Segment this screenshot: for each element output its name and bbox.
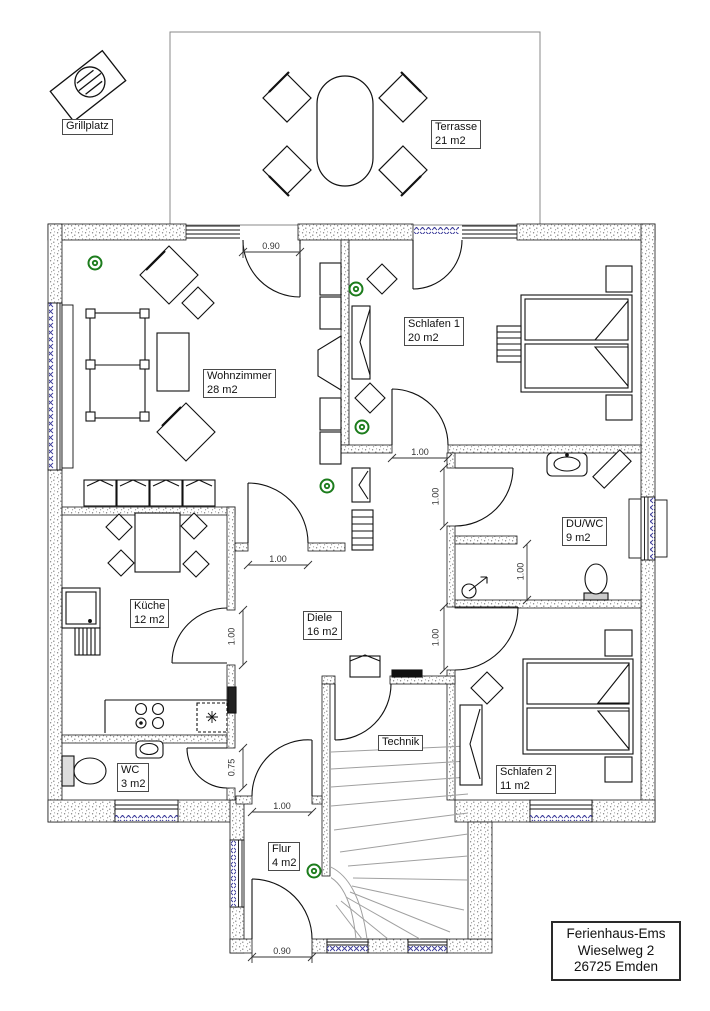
smoke-detector-icon: [308, 865, 321, 878]
room-area: 20 m2: [408, 332, 460, 346]
title-line-3: 26725 Emden: [555, 959, 677, 976]
room-name: Grillplatz: [66, 120, 109, 134]
room-name: Diele: [307, 612, 338, 626]
dim-terrace-door: 0.90: [253, 241, 289, 252]
room-label-schlafen2: Schlafen 2 11 m2: [496, 765, 556, 794]
room-label-grillplatz: Grillplatz: [62, 119, 113, 135]
room-label-terrasse: Terrasse 21 m2: [431, 120, 481, 149]
room-name: Wohnzimmer: [207, 370, 272, 384]
dim-wohnzimmer-door: 1.00: [260, 554, 296, 565]
smoke-detector-icon: [356, 421, 369, 434]
room-name: Terrasse: [435, 121, 477, 135]
dim-shower: 1.00: [516, 554, 527, 590]
room-name: WC: [121, 764, 145, 778]
shower-icon: [462, 577, 487, 598]
stove-icon: [136, 704, 164, 729]
room-label-wohnzimmer: Wohnzimmer 28 m2: [203, 369, 276, 398]
floorplan-drawing: [0, 0, 710, 1011]
smoke-detector-icon: [321, 480, 334, 493]
room-label-schlafen1: Schlafen 1 20 m2: [404, 317, 464, 346]
room-area: 28 m2: [207, 384, 272, 398]
smoke-detector-icon: [350, 283, 363, 296]
room-label-diele: Diele 16 m2: [303, 611, 342, 640]
room-name: Schlafen 1: [408, 318, 460, 332]
dim-kueche-door: 1.00: [227, 619, 238, 655]
room-label-wc: WC 3 m2: [117, 763, 149, 792]
room-label-kueche: Küche 12 m2: [130, 599, 169, 628]
room-area: 4 m2: [272, 857, 296, 871]
room-area: 12 m2: [134, 614, 165, 628]
room-label-technik: Technik: [378, 735, 423, 751]
dim-duwc-door: 1.00: [431, 479, 442, 515]
room-label-flur: Flur 4 m2: [268, 842, 300, 871]
dim-schlafen1-door: 1.00: [402, 447, 438, 458]
dim-flur-door: 1.00: [264, 801, 300, 812]
room-name: Küche: [134, 600, 165, 614]
room-area: 21 m2: [435, 135, 477, 149]
dim-wc-door: 0.75: [227, 750, 238, 786]
furniture-diele: [350, 468, 422, 677]
furniture-schlafen2: [460, 630, 633, 785]
floorplan: Grillplatz Terrasse 21 m2 Wohnzimmer 28 …: [0, 0, 710, 1011]
toilet-icon: [62, 756, 74, 786]
room-name: Schlafen 2: [500, 766, 552, 780]
staircase: [322, 746, 468, 939]
furniture-schlafen1: [352, 264, 632, 420]
title-line-2: Wieselweg 2: [555, 943, 677, 960]
room-name: Flur: [272, 843, 296, 857]
title-line-1: Ferienhaus-Ems: [555, 926, 677, 943]
room-area: 9 m2: [566, 532, 603, 546]
terrace-table: [317, 76, 373, 186]
room-area: 11 m2: [500, 780, 552, 794]
smoke-detector-icon: [89, 257, 102, 270]
room-name: DU/WC: [566, 518, 603, 532]
grill-icon: [50, 51, 125, 122]
room-name: Technik: [382, 736, 419, 750]
room-area: 16 m2: [307, 626, 338, 640]
room-area: 3 m2: [121, 778, 145, 792]
room-label-duwc: DU/WC 9 m2: [562, 517, 607, 546]
dim-entry-door: 0.90: [264, 946, 300, 957]
dim-schlafen2-door: 1.00: [431, 620, 442, 656]
title-block: Ferienhaus-Ems Wieselweg 2 26725 Emden: [551, 921, 681, 981]
